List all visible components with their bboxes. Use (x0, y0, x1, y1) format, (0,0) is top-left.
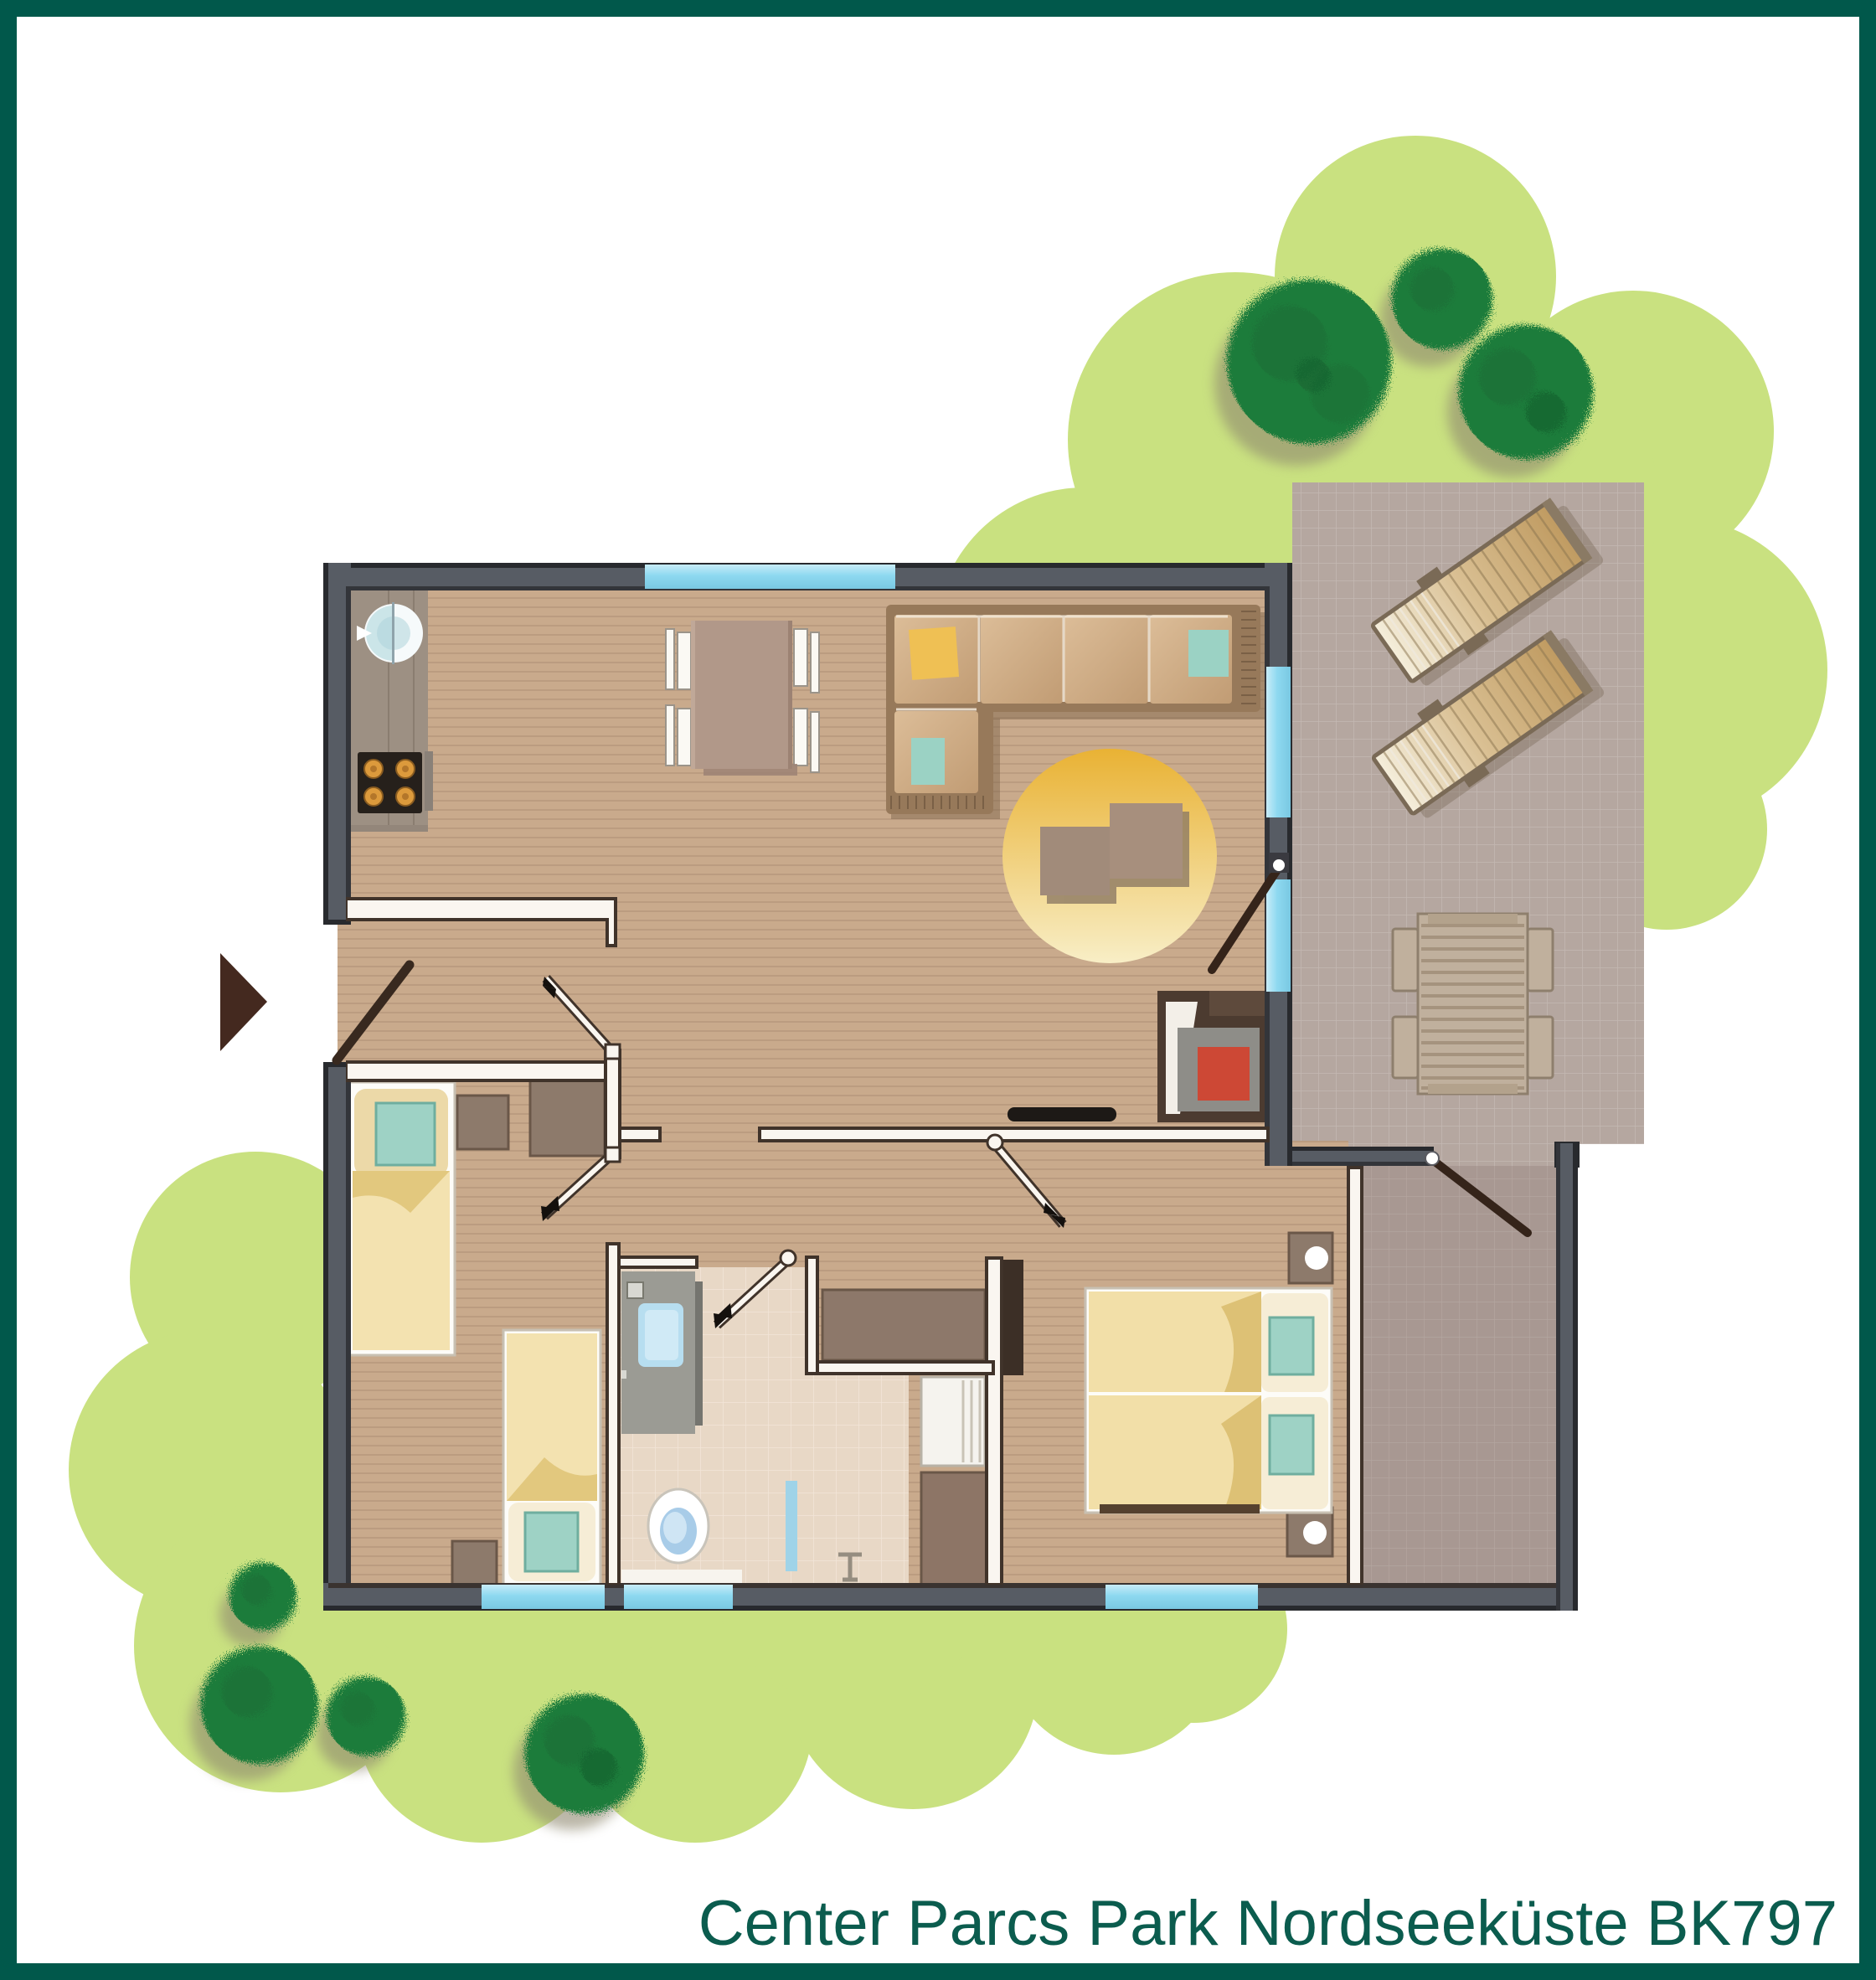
svg-text:Center Parcs Park Nordseeküste: Center Parcs Park Nordseeküste BK797 (698, 1888, 1837, 1959)
